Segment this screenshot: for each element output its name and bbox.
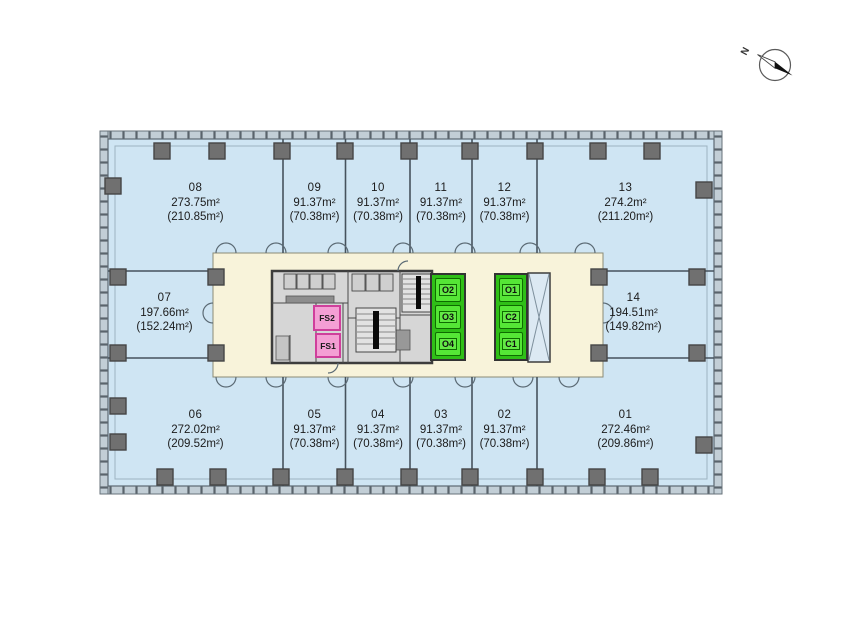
unit-number: 01 [537,408,714,423]
unit-area: 91.37m² [283,423,346,438]
unit-area: 91.37m² [346,196,410,211]
north-compass-icon [758,50,793,81]
unit-number: 13 [537,181,714,196]
elevator-cell-c1: C1 [499,332,523,356]
unit-area: 91.37m² [472,196,537,211]
unit-area: 91.37m² [283,196,346,211]
unit-label-12: 12 91.37m² (70.38m²) [472,181,537,225]
unit-number: 03 [410,408,472,423]
unit-label-05: 05 91.37m² (70.38m²) [283,408,346,452]
unit-net-area: (70.38m²) [346,437,410,452]
unit-net-area: (70.38m²) [283,210,346,225]
unit-area: 91.37m² [346,423,410,438]
unit-net-area: (209.86m²) [537,437,714,452]
unit-number: 08 [108,181,283,196]
unit-area: 274.2m² [537,196,714,211]
elevator-label: C1 [502,338,520,350]
floorplan-page: 08 273.75m² (210.85m²) 09 91.37m² (70.38… [0,0,846,635]
fire-stair-fs2: FS2 [313,305,341,331]
unit-area: 272.46m² [537,423,714,438]
elevator-cell-o1: O1 [499,278,523,302]
elevator-cell-o3: O3 [435,305,461,329]
unit-area: 273.75m² [108,196,283,211]
unit-net-area: (209.52m²) [108,437,283,452]
unit-label-13: 13 274.2m² (211.20m²) [537,181,714,225]
elevator-bank-left: O2 O3 O4 [430,273,466,361]
unit-number: 06 [108,408,283,423]
unit-number: 02 [472,408,537,423]
unit-label-11: 11 91.37m² (70.38m²) [410,181,472,225]
elevator-cell-o4: O4 [435,332,461,356]
service-shaft [528,273,550,362]
unit-area: 272.02m² [108,423,283,438]
elevator-label: C2 [502,311,520,323]
unit-net-area: (70.38m²) [410,210,472,225]
unit-area: 194.51m² [586,306,681,321]
unit-number: 04 [346,408,410,423]
unit-area: 91.37m² [410,423,472,438]
unit-net-area: (210.85m²) [108,210,283,225]
unit-number: 14 [586,291,681,306]
unit-label-04: 04 91.37m² (70.38m²) [346,408,410,452]
elevator-label: O1 [502,284,520,296]
unit-label-08: 08 273.75m² (210.85m²) [108,181,283,225]
unit-label-03: 03 91.37m² (70.38m²) [410,408,472,452]
elevator-cell-c2: C2 [499,305,523,329]
unit-net-area: (149.82m²) [586,320,681,335]
unit-number: 12 [472,181,537,196]
unit-number: 11 [410,181,472,196]
unit-net-area: (211.20m²) [537,210,714,225]
unit-net-area: (70.38m²) [472,210,537,225]
elevator-cell-o2: O2 [435,278,461,302]
elevator-label: O3 [439,311,457,323]
core-block [272,271,432,363]
unit-label-10: 10 91.37m² (70.38m²) [346,181,410,225]
unit-net-area: (70.38m²) [472,437,537,452]
unit-net-area: (70.38m²) [410,437,472,452]
unit-net-area: (70.38m²) [283,437,346,452]
unit-label-09: 09 91.37m² (70.38m²) [283,181,346,225]
unit-area: 91.37m² [410,196,472,211]
unit-area: 91.37m² [472,423,537,438]
unit-number: 10 [346,181,410,196]
unit-number: 07 [112,291,217,306]
unit-area: 197.66m² [112,306,217,321]
elevator-label: O4 [439,338,457,350]
unit-label-14: 14 194.51m² (149.82m²) [586,291,681,335]
fire-stair-fs1: FS1 [315,333,341,358]
elevator-bank-right: O1 C2 C1 [494,273,528,361]
unit-label-06: 06 272.02m² (209.52m²) [108,408,283,452]
elevator-label: O2 [439,284,457,296]
unit-net-area: (152.24m²) [112,320,217,335]
unit-number: 09 [283,181,346,196]
unit-label-01: 01 272.46m² (209.86m²) [537,408,714,452]
unit-label-07: 07 197.66m² (152.24m²) [112,291,217,335]
unit-label-02: 02 91.37m² (70.38m²) [472,408,537,452]
unit-net-area: (70.38m²) [346,210,410,225]
unit-number: 05 [283,408,346,423]
